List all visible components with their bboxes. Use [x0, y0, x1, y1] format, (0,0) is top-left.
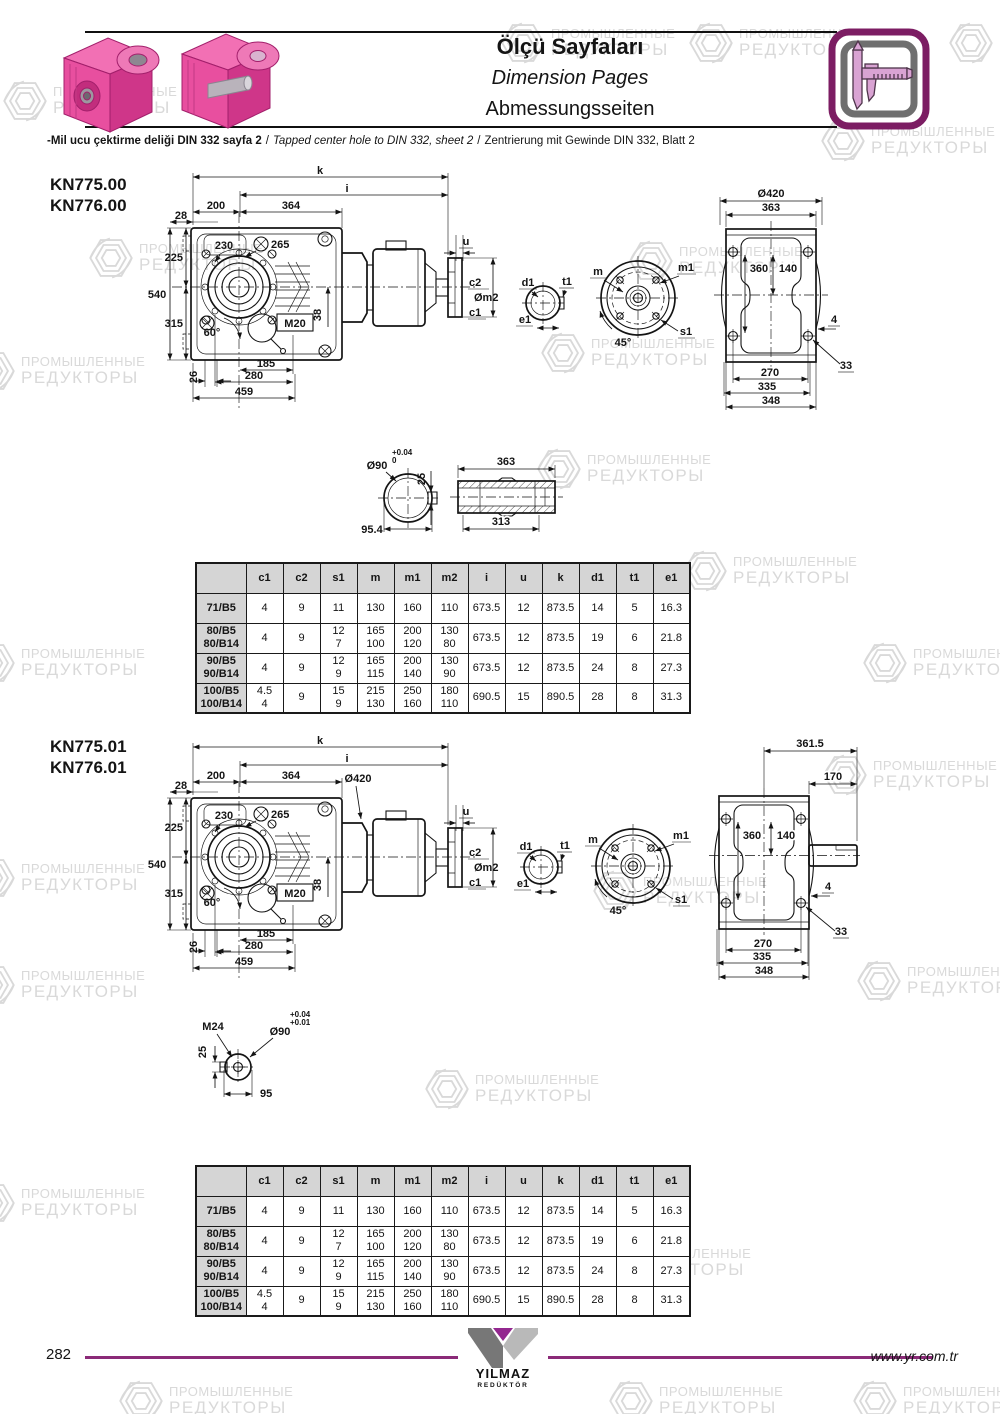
column-header: e1 — [653, 563, 690, 593]
watermark: ПРОМЫШЛЕННЫЕРЕДУКТОРЫ — [852, 1378, 1000, 1414]
dim-label: Øm2 — [474, 862, 498, 874]
dim-label: 335 — [758, 381, 776, 393]
table-cell: 6 — [616, 1226, 653, 1256]
table-row: 71/B54911130160110673.512873.514516.3 — [196, 1196, 690, 1226]
table-cell: 8 — [616, 653, 653, 683]
dim-label: 363 — [497, 456, 515, 468]
model-number: KN775.00 — [50, 174, 127, 195]
gearbox-photo-2 — [166, 18, 291, 138]
table-cell: 673.5 — [468, 623, 505, 653]
table-cell: 4 — [246, 593, 283, 623]
table-cell: 200 140 — [394, 1256, 431, 1286]
column-header: c2 — [283, 563, 320, 593]
table-cell: 673.5 — [468, 593, 505, 623]
dim-label: 540 — [148, 859, 166, 871]
table-cell: 12 — [505, 1256, 542, 1286]
table-row: 100/B5 100/B144.5 4915 9215 130250 16018… — [196, 1286, 690, 1316]
dim-label: 540 — [148, 289, 166, 301]
dim-label: 33 — [835, 926, 847, 938]
dim-label: Ø420 — [345, 773, 372, 785]
table-cell: 6 — [616, 623, 653, 653]
table-cell: 690.5 — [468, 1286, 505, 1316]
table-cell: 130 — [357, 1196, 394, 1226]
table-row: 80/B5 80/B144912 7165 100200 120130 8067… — [196, 1226, 690, 1256]
dim-label: d1 — [522, 277, 535, 289]
table-cell: 130 90 — [431, 1256, 468, 1286]
bore-section-view: 25 Ø90 +0.04 0 95.4 — [361, 448, 438, 536]
dim-label: 459 — [235, 956, 253, 968]
row-header: 100/B5 100/B14 — [196, 683, 246, 713]
dim-label: M20 — [284, 888, 305, 900]
side-view-dimensions: k i 200 364 Ø420 28 540 225 315 230 265 — [148, 735, 499, 972]
dim-label: 200 — [207, 200, 225, 212]
model-label-section-2: KN775.01 KN776.01 — [50, 736, 127, 778]
shaft-section-view: M24 Ø90 +0.04 +0.01 25 95 — [197, 1010, 311, 1100]
table-cell: 130 90 — [431, 653, 468, 683]
dim-label: c2 — [469, 847, 481, 859]
column-header: m1 — [394, 1166, 431, 1196]
separator: / — [266, 135, 269, 147]
table-cell: 16.3 — [653, 593, 690, 623]
table-cell: 16.3 — [653, 1196, 690, 1226]
table-cell: 873.5 — [542, 593, 579, 623]
dim-label: 185 — [257, 358, 275, 370]
watermark: ПРОМЫШЛЕННЫЕРЕДУКТОРЫ — [856, 958, 1000, 1004]
dim-label: 270 — [761, 367, 779, 379]
table-cell: 9 — [283, 1196, 320, 1226]
dim-label: 28 — [175, 210, 187, 222]
watermark: ПРОМЫШЛЕННЫЕРЕДУКТОРЫ — [0, 1180, 145, 1226]
page-title-english: Dimension Pages — [300, 63, 840, 94]
model-number: KN775.01 — [50, 736, 127, 757]
dim-label: 33 — [840, 360, 852, 372]
side-view-dimensions: k i 200 364 28 540 225 315 230 265 60° — [148, 165, 499, 402]
dim-label: 170 — [824, 771, 842, 783]
table-cell: 27.3 — [653, 1256, 690, 1286]
table-cell: 9 — [283, 683, 320, 713]
watermark-hex-icon — [856, 958, 902, 1004]
dim-label: 4 — [831, 314, 838, 326]
column-header: t1 — [616, 563, 653, 593]
website-url: www.yr.com.tr — [828, 1348, 958, 1364]
shaft-end-detail: d1 t1 e1 — [516, 276, 574, 328]
dimension-table: c1c2s1mm1m2iukd1t1e171/B5491113016011067… — [195, 562, 691, 714]
table-cell: 8 — [616, 683, 653, 713]
table-cell: 21.8 — [653, 1226, 690, 1256]
table-cell: 130 — [357, 593, 394, 623]
dim-label: 45° — [610, 905, 627, 917]
dim-label: u — [463, 806, 470, 818]
dim-label: 140 — [779, 263, 797, 275]
watermark-hex-icon — [424, 1066, 470, 1112]
dim-label: Ø420 — [758, 188, 785, 200]
din-note-turkish: -Mil ucu çektirme deliği DIN 332 sayfa 2 — [47, 135, 262, 147]
dim-label: 60° — [204, 897, 221, 909]
dim-label: t1 — [562, 276, 572, 288]
column-header: c1 — [246, 1166, 283, 1196]
dim-label: 315 — [165, 318, 183, 330]
dim-label: 280 — [245, 370, 263, 382]
column-header: d1 — [579, 1166, 616, 1196]
table-cell: 890.5 — [542, 1286, 579, 1316]
dim-label: 363 — [762, 202, 780, 214]
table-cell: 690.5 — [468, 683, 505, 713]
table-cell: 165 100 — [357, 1226, 394, 1256]
table-cell: 27.3 — [653, 653, 690, 683]
table-cell: 165 115 — [357, 653, 394, 683]
table-cell: 215 130 — [357, 1286, 394, 1316]
dim-label: 265 — [271, 809, 289, 821]
din-note-english: Tapped center hole to DIN 332, sheet 2 — [273, 135, 473, 147]
page-title-turkish: Ölçü Sayfaları — [300, 31, 840, 63]
dim-label: 348 — [755, 965, 773, 977]
corner-cell — [196, 563, 246, 593]
dim-label: i — [345, 183, 348, 195]
table-cell: 9 — [283, 593, 320, 623]
column-header: m1 — [394, 563, 431, 593]
dim-label: 38 — [312, 879, 324, 891]
dim-label: Ø90 — [367, 460, 388, 472]
dim-label: 225 — [165, 822, 183, 834]
dim-label: 4 — [825, 881, 832, 893]
table-cell: 9 — [283, 653, 320, 683]
watermark-hex-icon — [0, 348, 16, 394]
table-cell: 8 — [616, 1286, 653, 1316]
table-cell: 11 — [320, 1196, 357, 1226]
watermark-hex-icon — [948, 20, 994, 66]
table-cell: 165 115 — [357, 1256, 394, 1286]
column-header: s1 — [320, 563, 357, 593]
brand-subtitle: REDÜKTÖR — [477, 1380, 528, 1389]
table-cell: 15 9 — [320, 683, 357, 713]
dim-label: 230 — [215, 810, 233, 822]
model-number: KN776.01 — [50, 757, 127, 778]
table-row: 80/B5 80/B144912 7165 100200 120130 8067… — [196, 623, 690, 653]
dim-label: 364 — [282, 770, 301, 782]
table-row: 90/B5 90/B144912 9165 115200 140130 9067… — [196, 653, 690, 683]
table-cell: 12 7 — [320, 623, 357, 653]
table-cell: 673.5 — [468, 653, 505, 683]
dimension-table-2: c1c2s1mm1m2iukd1t1e171/B5491113016011067… — [195, 1165, 691, 1317]
din-note: -Mil ucu çektirme deliği DIN 332 sayfa 2… — [47, 135, 695, 147]
dim-label: 200 — [207, 770, 225, 782]
dim-label: k — [317, 165, 324, 177]
watermark-hex-icon — [0, 962, 16, 1008]
table-cell: 12 — [505, 653, 542, 683]
gearbox-photo-1 — [50, 24, 170, 142]
dim-label: k — [317, 735, 324, 747]
din-note-german: Zentrierung mit Gewinde DIN 332, Blatt 2 — [484, 135, 694, 147]
watermark-hex-icon — [852, 1378, 898, 1414]
dim-label: m — [593, 266, 603, 278]
dim-label: 26 — [188, 371, 200, 383]
dim-label: s1 — [680, 326, 692, 338]
table-cell: 4.5 4 — [246, 683, 283, 713]
table-cell: 15 — [505, 683, 542, 713]
table-cell: 110 — [431, 593, 468, 623]
dim-label: d1 — [520, 841, 533, 853]
column-header: m2 — [431, 1166, 468, 1196]
column-header: d1 — [579, 563, 616, 593]
dim-label: c2 — [469, 277, 481, 289]
table-cell: 14 — [579, 1196, 616, 1226]
column-header: c1 — [246, 563, 283, 593]
page-number: 282 — [46, 1346, 71, 1363]
tolerance-label: 0 — [392, 456, 397, 465]
model-label-section-1: KN775.00 KN776.00 — [50, 174, 127, 216]
watermark-hex-icon — [118, 1378, 164, 1414]
dim-label: t1 — [560, 840, 570, 852]
dim-label: 335 — [753, 951, 771, 963]
table-cell: 130 80 — [431, 1226, 468, 1256]
dim-label: Øm2 — [474, 292, 498, 304]
table-cell: 4 — [246, 1256, 283, 1286]
separator: / — [477, 135, 480, 147]
dim-label: e1 — [519, 314, 531, 326]
table-row: 71/B54911130160110673.512873.514516.3 — [196, 593, 690, 623]
table-cell: 4.5 4 — [246, 1286, 283, 1316]
table-row: 100/B5 100/B144.5 4915 9215 130250 16018… — [196, 683, 690, 713]
table-cell: 160 — [394, 593, 431, 623]
watermark: ПРОМЫШЛЕННЫЕРЕДУКТОРЫ — [118, 1378, 293, 1414]
table-cell: 160 — [394, 1196, 431, 1226]
dim-label: 38 — [312, 309, 324, 321]
dim-label: 270 — [754, 938, 772, 950]
table-cell: 200 120 — [394, 1226, 431, 1256]
watermark: ПРОМЫШЛЕННЫЕРЕДУКТОРЫ — [682, 548, 857, 594]
dim-label: M24 — [202, 1021, 224, 1033]
watermark-hex-icon — [0, 640, 16, 686]
table-cell: 24 — [579, 653, 616, 683]
motor-flange-view: m m1 s1 45° — [585, 824, 691, 917]
dim-label: u — [463, 236, 470, 248]
dimension-table-1: c1c2s1mm1m2iukd1t1e171/B5491113016011067… — [195, 562, 691, 714]
table-cell: 15 9 — [320, 1286, 357, 1316]
table-cell: 9 — [283, 1256, 320, 1286]
column-header: m — [357, 563, 394, 593]
dim-label: m1 — [673, 830, 689, 842]
table-cell: 8 — [616, 1256, 653, 1286]
watermark: ПРОМЫШЛЕННЫЕРЕДУКТОРЫ — [0, 640, 145, 686]
brand-name: YILMAZ — [476, 1366, 530, 1381]
table-cell: 165 100 — [357, 623, 394, 653]
table-cell: 12 9 — [320, 653, 357, 683]
table-cell: 28 — [579, 683, 616, 713]
watermark: ПРОМЫШЛЕННЫЕРЕДУКТОРЫ — [0, 855, 145, 901]
dim-label: 360 — [750, 263, 768, 275]
table-cell: 110 — [431, 1196, 468, 1226]
column-header: e1 — [653, 1166, 690, 1196]
table-cell: 21.8 — [653, 623, 690, 653]
title-block: Ölçü Sayfaları Dimension Pages Abmessung… — [300, 31, 840, 125]
dim-label: 25 — [416, 473, 428, 485]
table-cell: 5 — [616, 1196, 653, 1226]
table-cell: 31.3 — [653, 1286, 690, 1316]
watermark-hex-icon — [0, 855, 16, 901]
table-cell: 250 160 — [394, 683, 431, 713]
table-cell: 14 — [579, 593, 616, 623]
page-title-german: Abmessungsseiten — [300, 94, 840, 125]
table-cell: 28 — [579, 1286, 616, 1316]
table-cell: 12 7 — [320, 1226, 357, 1256]
dim-label: 361.5 — [796, 738, 824, 750]
watermark-hex-icon — [608, 1378, 654, 1414]
table-cell: 215 130 — [357, 683, 394, 713]
column-header: s1 — [320, 1166, 357, 1196]
watermark: ПРОМЫШЛЕННЫЕРЕДУКТОРЫ — [862, 640, 1000, 686]
dim-label: 45° — [615, 337, 632, 349]
model-number: KN776.00 — [50, 195, 127, 216]
dim-label: m1 — [678, 262, 694, 274]
table-cell: 19 — [579, 1226, 616, 1256]
table-cell: 890.5 — [542, 683, 579, 713]
table-cell: 130 80 — [431, 623, 468, 653]
column-header: m — [357, 1166, 394, 1196]
dim-label: s1 — [675, 894, 687, 906]
dim-label: 28 — [175, 780, 187, 792]
dim-label: 225 — [165, 252, 183, 264]
technical-drawing-kn775-00: k i 200 364 28 540 225 315 230 265 60° — [140, 165, 860, 450]
table-cell: 12 — [505, 623, 542, 653]
table-cell: 873.5 — [542, 1226, 579, 1256]
dim-label: 364 — [282, 200, 301, 212]
dim-label: M20 — [284, 318, 305, 330]
row-header: 71/B5 — [196, 593, 246, 623]
row-header: 100/B5 100/B14 — [196, 1286, 246, 1316]
column-header: k — [542, 1166, 579, 1196]
row-header: 90/B5 90/B14 — [196, 1256, 246, 1286]
table-cell: 250 160 — [394, 1286, 431, 1316]
dim-label: m — [588, 834, 598, 846]
table-cell: 15 — [505, 1286, 542, 1316]
hollow-shaft-longitudinal: 363 313 — [450, 456, 563, 532]
dim-label: 313 — [492, 516, 510, 528]
column-header: u — [505, 1166, 542, 1196]
table-cell: 11 — [320, 593, 357, 623]
watermark: ПРОМЫШЛЕННЫЕРЕДУКТОРЫ — [608, 1378, 783, 1414]
watermark-hex-icon — [2, 78, 48, 124]
table-cell: 9 — [283, 1286, 320, 1316]
rear-view: Ø420 363 360 140 4 33 270 335 348 — [714, 188, 854, 410]
page: ПРОМЫШЛЕННЫЕРЕДУКТОРЫ ПРОМЫШЛЕННЫЕРЕДУКТ… — [0, 0, 1000, 1414]
table-cell: 4 — [246, 1226, 283, 1256]
dim-label: 185 — [257, 928, 275, 940]
table-cell: 200 140 — [394, 653, 431, 683]
dim-label: 315 — [165, 888, 183, 900]
dim-label: 95.4 — [361, 524, 383, 536]
technical-drawing-kn775-01: k i 200 364 Ø420 28 540 225 315 230 265 — [140, 735, 860, 1020]
table-cell: 4 — [246, 653, 283, 683]
rear-view: 361.5 170 360 140 4 33 270 335 348 — [709, 738, 860, 980]
table-row: 90/B5 90/B144912 9165 115200 140130 9067… — [196, 1256, 690, 1286]
table-cell: 31.3 — [653, 683, 690, 713]
table-cell: 873.5 — [542, 653, 579, 683]
column-header: m2 — [431, 563, 468, 593]
dim-label: 348 — [762, 395, 780, 407]
watermark-hex-icon — [0, 1180, 16, 1226]
table-cell: 180 110 — [431, 683, 468, 713]
dim-label: 95 — [260, 1088, 272, 1100]
column-header: i — [468, 1166, 505, 1196]
table-cell: 12 — [505, 1226, 542, 1256]
column-header: t1 — [616, 1166, 653, 1196]
table-cell: 9 — [283, 1226, 320, 1256]
row-header: 71/B5 — [196, 1196, 246, 1226]
dim-label: 459 — [235, 386, 253, 398]
table-cell: 673.5 — [468, 1196, 505, 1226]
dim-label: 60° — [204, 327, 221, 339]
table-cell: 180 110 — [431, 1286, 468, 1316]
dim-label: 280 — [245, 940, 263, 952]
table-cell: 4 — [246, 623, 283, 653]
watermark-hex-icon — [862, 640, 908, 686]
table-cell: 5 — [616, 593, 653, 623]
dim-label: 230 — [215, 240, 233, 252]
row-header: 80/B5 80/B14 — [196, 1226, 246, 1256]
table-cell: 873.5 — [542, 623, 579, 653]
dim-label: 265 — [271, 239, 289, 251]
hollow-shaft-detail-kn775-00: 25 Ø90 +0.04 0 95.4 363 313 — [330, 443, 680, 551]
dim-label: e1 — [517, 878, 529, 890]
table-cell: 200 120 — [394, 623, 431, 653]
dim-label: 360 — [743, 830, 761, 842]
dim-label: 140 — [777, 830, 795, 842]
watermark-hex-icon — [88, 235, 134, 281]
dim-label: i — [345, 753, 348, 765]
column-header: k — [542, 563, 579, 593]
caliper-icon — [828, 28, 930, 130]
table-cell: 873.5 — [542, 1196, 579, 1226]
table-cell: 4 — [246, 1196, 283, 1226]
corner-cell — [196, 1166, 246, 1196]
table-cell: 673.5 — [468, 1226, 505, 1256]
table-cell: 24 — [579, 1256, 616, 1286]
table-cell: 9 — [283, 623, 320, 653]
watermark: ПРОМЫШЛЕННЫЕРЕДУКТОРЫ — [948, 20, 1000, 66]
dim-label: 25 — [197, 1046, 209, 1058]
row-header: 90/B5 90/B14 — [196, 653, 246, 683]
shaft-end-detail: d1 t1 e1 — [514, 840, 572, 892]
table-cell: 12 — [505, 593, 542, 623]
watermark: ПРОМЫШЛЕННЫЕРЕДУКТОРЫ — [0, 348, 145, 394]
yilmaz-reduktor-logo: YILMAZ REDÜKTÖR — [458, 1326, 548, 1390]
watermark: ПРОМЫШЛЕННЫЕРЕДУКТОРЫ — [0, 962, 145, 1008]
table-cell: 19 — [579, 623, 616, 653]
dim-label: Ø90 — [270, 1026, 291, 1038]
row-header: 80/B5 80/B14 — [196, 623, 246, 653]
dimension-table: c1c2s1mm1m2iukd1t1e171/B5491113016011067… — [195, 1165, 691, 1317]
column-header: i — [468, 563, 505, 593]
column-header: u — [505, 563, 542, 593]
motor-flange-view: m m1 s1 45° — [590, 256, 696, 349]
table-cell: 673.5 — [468, 1256, 505, 1286]
table-cell: 12 9 — [320, 1256, 357, 1286]
tolerance-label: +0.01 — [290, 1018, 311, 1027]
solid-shaft-detail-kn775-01: M24 Ø90 +0.04 +0.01 25 95 — [170, 1005, 430, 1115]
table-cell: 873.5 — [542, 1256, 579, 1286]
table-cell: 12 — [505, 1196, 542, 1226]
watermark: ПРОМЫШЛЕННЫЕРЕДУКТОРЫ — [424, 1066, 599, 1112]
column-header: c2 — [283, 1166, 320, 1196]
dim-label: 26 — [188, 941, 200, 953]
